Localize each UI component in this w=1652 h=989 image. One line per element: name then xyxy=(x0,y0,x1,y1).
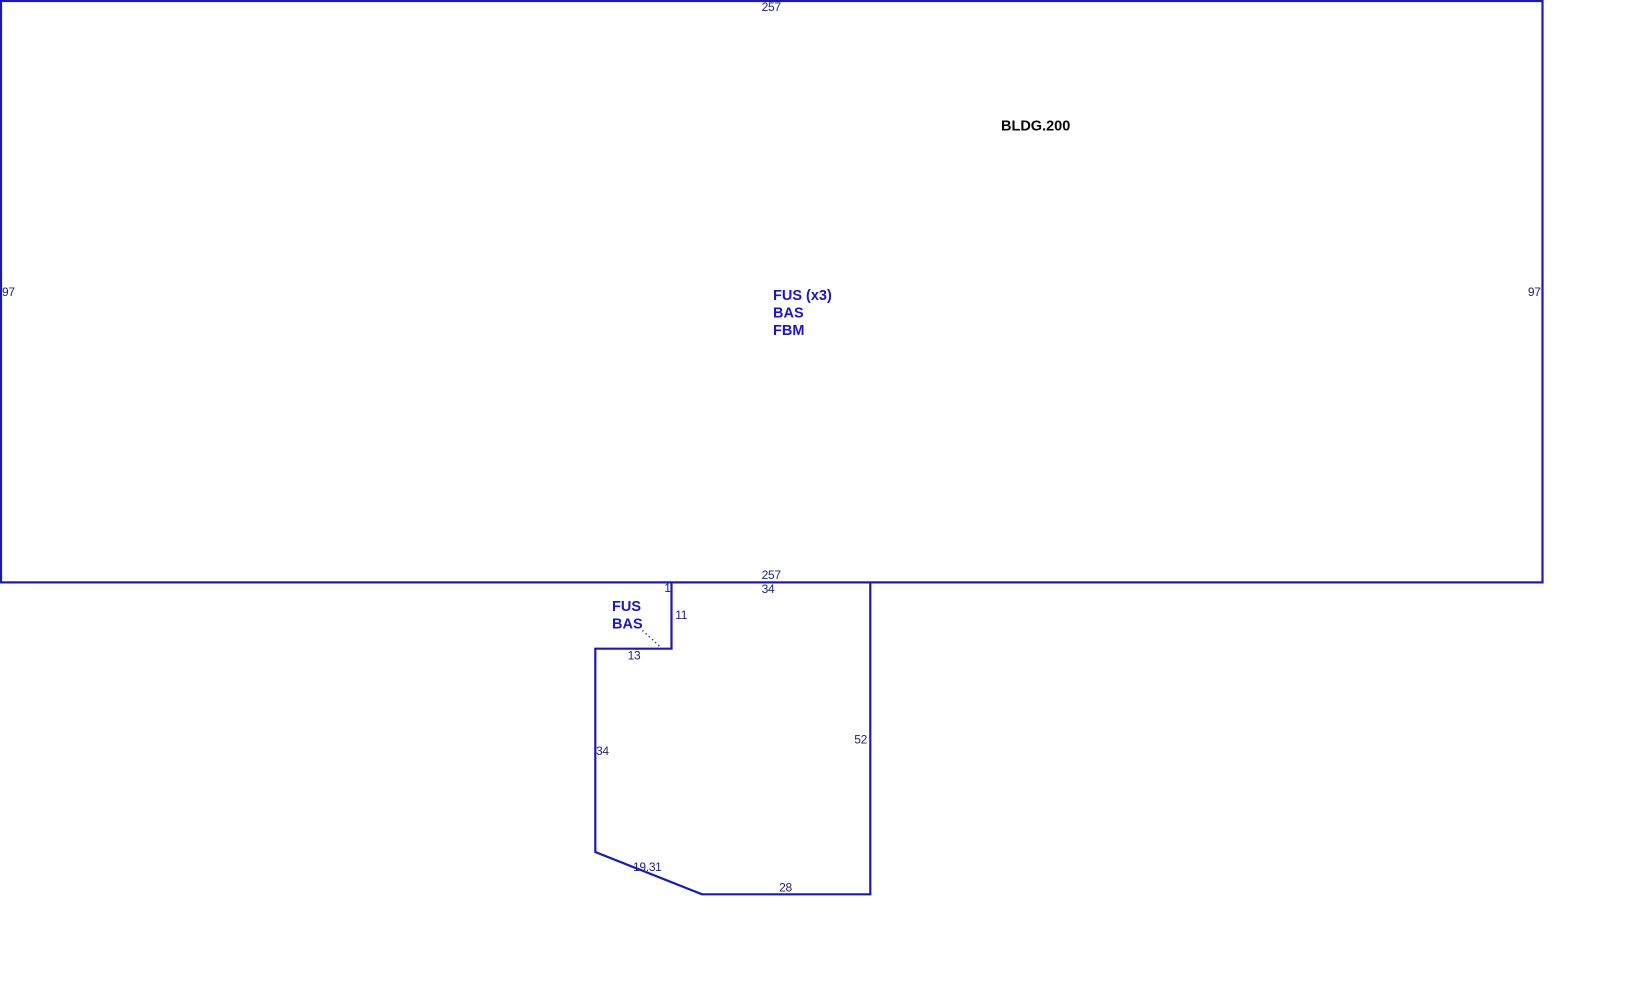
svg-text:BLDG.200: BLDG.200 xyxy=(1001,118,1070,134)
svg-text:34: 34 xyxy=(762,582,775,596)
svg-text:FUS (x3): FUS (x3) xyxy=(773,288,832,304)
svg-text:BAS: BAS xyxy=(612,617,643,633)
svg-text:52: 52 xyxy=(854,732,867,746)
svg-text:11: 11 xyxy=(675,608,687,622)
svg-text:97: 97 xyxy=(2,285,15,299)
svg-text:97: 97 xyxy=(1528,285,1541,299)
svg-text:FUS: FUS xyxy=(612,599,641,615)
svg-text:19.31: 19.31 xyxy=(633,860,662,874)
svg-text:28: 28 xyxy=(779,881,792,895)
svg-text:13: 13 xyxy=(628,649,641,663)
svg-text:34: 34 xyxy=(596,744,609,758)
svg-text:FBM: FBM xyxy=(773,323,804,339)
svg-text:1: 1 xyxy=(664,581,671,595)
svg-text:BAS: BAS xyxy=(773,306,804,322)
svg-text:257: 257 xyxy=(762,568,782,582)
svg-text:257: 257 xyxy=(762,0,782,14)
